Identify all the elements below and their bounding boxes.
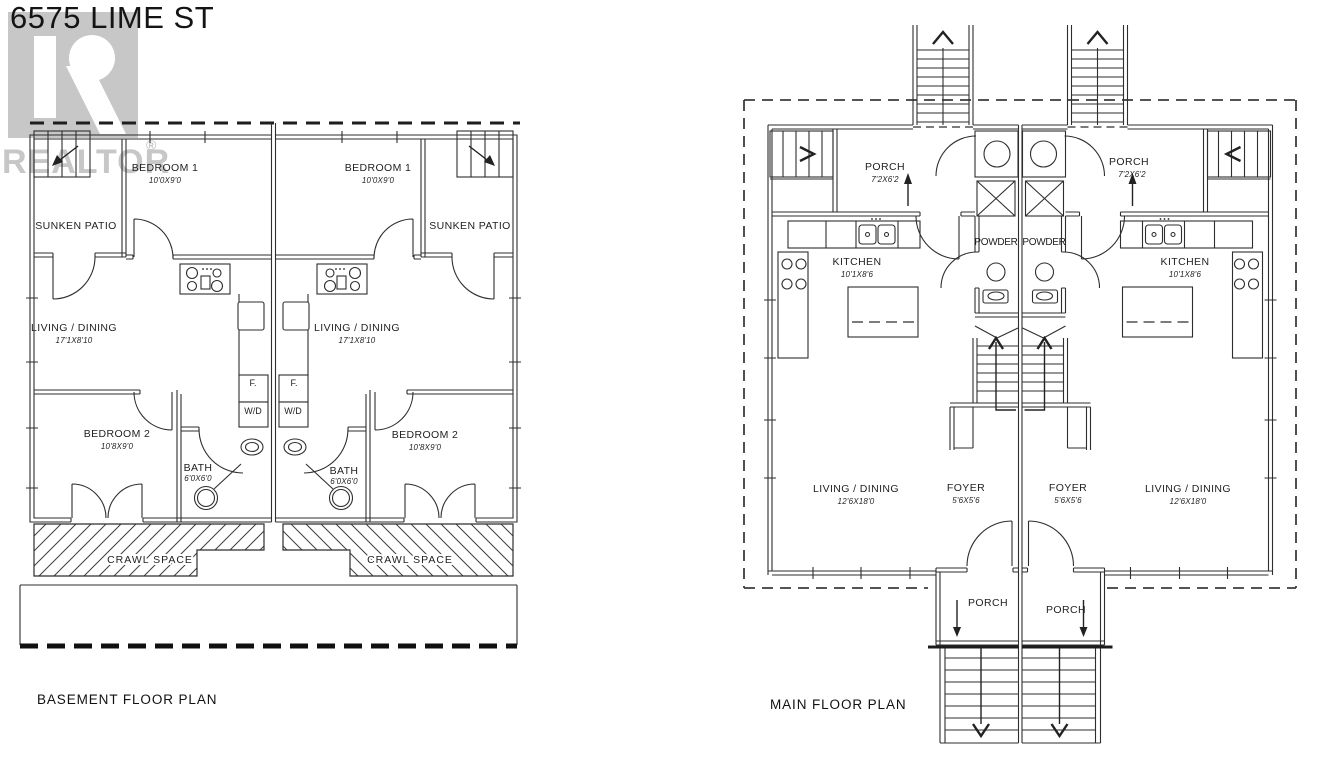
room-label-porch-bottom: PORCH [968,597,1008,609]
room-dim-bedroom1: 10'0X9'0 [149,176,182,185]
kitchen-door-arc [916,216,959,259]
entry-door-arc [936,136,976,176]
interior-stairs-icon [973,326,1019,410]
room-label-living-dining: LIVING / DINING [31,322,117,334]
room-label-foyer: FOYER [1049,482,1087,494]
room-label-living-dining: LIVING / DINING [813,483,899,495]
room-dim-porch-top: 7'2X6'2 [871,175,899,184]
room-label-bedroom2: BEDROOM 2 [392,429,459,441]
front-stairs-icon [940,648,1019,743]
room-dim-foyer: 5'6X5'6 [952,496,980,505]
label-furnace: F. [290,378,297,388]
main-unit-right-mirror [1022,25,1277,743]
room-dim-bedroom2: 10'8X9'0 [101,442,134,451]
room-label-bath: BATH [330,465,359,477]
kitchen-island [848,287,918,337]
room-dim-living-dining: 12'6X18'0 [1170,497,1207,506]
basement-floor-plan: BEDROOM 1 10'0X9'0 SUNKEN PATIO LIVING /… [20,123,521,707]
floor-plan-drawing: REALTOR ® [0,0,1322,780]
bath-sink-icon [241,439,263,455]
porch-side-stairs-icon [770,131,833,179]
porch-arrow-icon [904,173,912,206]
page-title: 6575 LIME ST [10,0,214,36]
room-label-porch-bottom: PORCH [1046,604,1086,616]
patio-door-arc [53,257,95,299]
room-dim-kitchen: 10'1X8'6 [1169,270,1202,279]
main-plan-caption: MAIN FLOOR PLAN [770,697,907,712]
room-label-powder: POWDER [1022,237,1065,248]
chase-x-icon [977,181,1015,216]
powder-toilet-icon [983,263,1008,303]
foyer-door-arc [967,521,1012,566]
room-label-powder: POWDER [974,237,1017,248]
room-dim-living-dining: 12'6X18'0 [838,497,875,506]
cooktop-icon [782,259,806,289]
toilet-icon [195,487,218,510]
room-label-porch-top: PORCH [865,161,905,173]
room-dim-kitchen: 10'1X8'6 [841,270,874,279]
room-label-living-dining: LIVING / DINING [1145,483,1231,495]
room-dim-living-dining: 17'1X8'10 [339,336,376,345]
porch-down-arrow-icon [953,600,961,637]
main-floor-plan: PORCH 7'2X6'2 KITCHEN 10'1X8'6 POWDER LI… [744,25,1296,743]
bedroom1-door-arc [134,219,173,258]
room-label-living-dining: LIVING / DINING [314,322,400,334]
room-label-kitchen: KITCHEN [833,256,882,268]
stove-icon [180,264,230,294]
room-label-porch-top: PORCH [1109,156,1149,168]
room-dim-living-dining: 17'1X8'10 [56,336,93,345]
basement-unit-linework [26,123,272,576]
room-label-bath: BATH [184,462,213,474]
label-crawl-space: CRAWL SPACE [107,554,193,566]
label-washer-dryer: W/D [284,406,302,416]
basement-plan-caption: BASEMENT FLOOR PLAN [37,692,217,707]
basement-deck-outline [20,585,517,646]
room-label-kitchen: KITCHEN [1161,256,1210,268]
room-dim-bedroom2: 10'8X9'0 [409,443,442,452]
room-dim-bath: 6'0X6'0 [184,474,212,483]
floor-plan-sheet: REALTOR ® [0,0,1322,780]
crawl-space-hatch [34,524,264,576]
label-furnace: F. [249,378,256,388]
bedroom2-door-arc [134,392,172,430]
rear-stairs-icon [913,25,973,125]
fridge-icon [238,302,264,330]
label-crawl-space: CRAWL SPACE [367,554,453,566]
basement-unit-right-mirror [276,123,522,576]
room-label-bedroom2: BEDROOM 2 [84,428,151,440]
french-doors-arc [72,484,142,518]
water-heater-icon [975,131,1018,177]
room-dim-porch-top: 7'2X6'2 [1118,170,1146,179]
label-washer-dryer: W/D [244,406,262,416]
room-dim-bedroom1: 10'0X9'0 [362,176,395,185]
room-dim-bath: 6'0X6'0 [330,477,358,486]
main-unit-linework [764,25,1019,743]
room-label-bedroom1: BEDROOM 1 [132,162,199,174]
main-overhang-dashed-outline [744,100,1296,588]
kitchen-sink-icon [859,218,895,244]
room-label-sunken-patio: SUNKEN PATIO [429,220,510,232]
room-label-sunken-patio: SUNKEN PATIO [35,220,116,232]
room-dim-foyer: 5'6X5'6 [1054,496,1082,505]
room-label-foyer: FOYER [947,482,985,494]
room-label-bedroom1: BEDROOM 1 [345,162,412,174]
